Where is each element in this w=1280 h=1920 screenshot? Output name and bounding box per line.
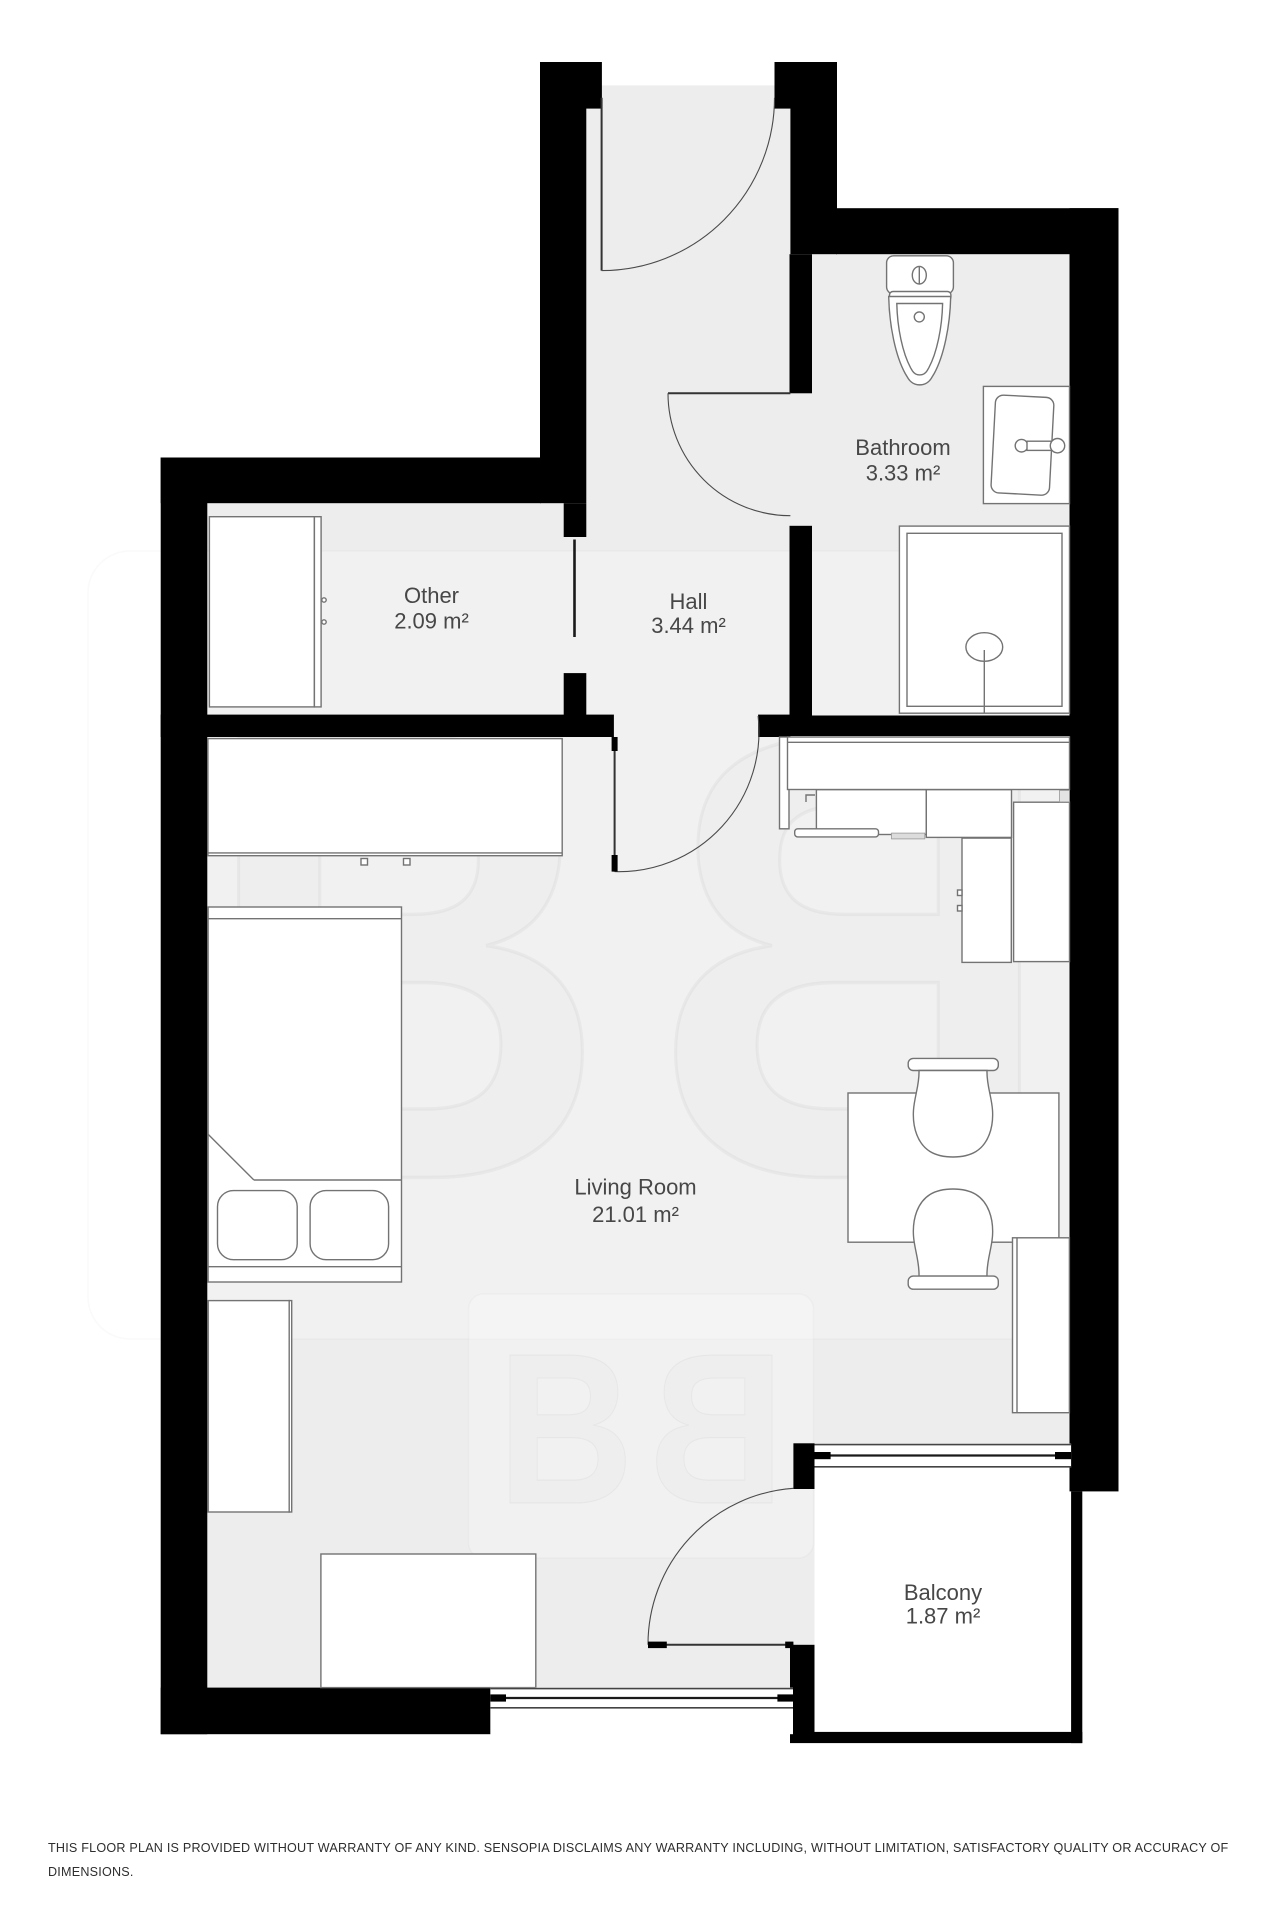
svg-text:Living Room: Living Room <box>574 1175 696 1200</box>
svg-text:2.09 m²: 2.09 m² <box>394 609 469 634</box>
svg-text:Hall: Hall <box>670 589 708 614</box>
svg-text:21.01 m²: 21.01 m² <box>592 1202 679 1227</box>
svg-text:DIMENSIONS.: DIMENSIONS. <box>48 1865 134 1879</box>
svg-text:3.33 m²: 3.33 m² <box>866 461 941 486</box>
svg-text:1.87 m²: 1.87 m² <box>906 1604 981 1629</box>
svg-text:Other: Other <box>404 583 459 608</box>
svg-text:Balcony: Balcony <box>904 1580 982 1605</box>
svg-text:3.44 m²: 3.44 m² <box>651 613 726 638</box>
svg-text:Bathroom: Bathroom <box>855 435 950 460</box>
svg-text:THIS FLOOR PLAN IS PROVIDED WI: THIS FLOOR PLAN IS PROVIDED WITHOUT WARR… <box>48 1841 1228 1855</box>
